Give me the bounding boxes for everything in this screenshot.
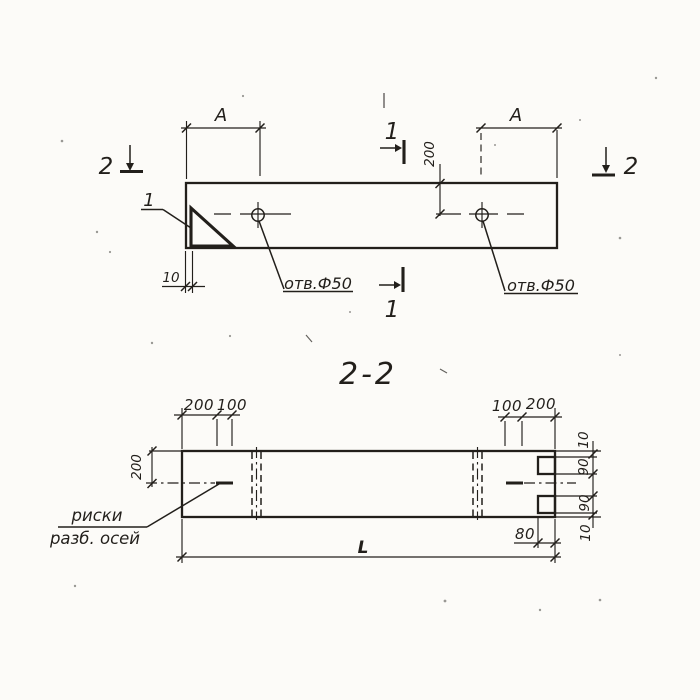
dim-top-left-200-label: 200 bbox=[184, 396, 214, 414]
dim-right-90-top-label: 90 bbox=[576, 458, 592, 475]
hole-hidden-right bbox=[473, 447, 482, 520]
section-title: 2-2 bbox=[339, 357, 397, 392]
scan-noise bbox=[61, 77, 658, 611]
dim-hole-offset: 200 bbox=[422, 141, 445, 218]
dim-a-left: A bbox=[181, 105, 266, 179]
section-mark-2-left-label: 2 bbox=[99, 154, 114, 180]
dim-length: L bbox=[176, 519, 561, 563]
dim-a-right: A bbox=[476, 105, 562, 178]
detail-callout: 1 bbox=[141, 190, 191, 228]
hole-note-right: отв.Ф50 bbox=[483, 221, 578, 295]
dim-hole-offset-label: 200 bbox=[422, 141, 438, 167]
dim-top-right-100-label: 100 bbox=[492, 397, 522, 415]
dim-half-height-label: 200 bbox=[129, 454, 145, 480]
section-mark-2-right-label: 2 bbox=[624, 154, 639, 180]
drawing-sheet: A A 200 10 1 bbox=[0, 0, 700, 700]
section-view: 2-2 200 bbox=[49, 357, 601, 563]
dim-half-height: 200 bbox=[129, 447, 181, 489]
hole-note-right-label: отв.Ф50 bbox=[507, 276, 575, 295]
dim-a-right-label: A bbox=[509, 105, 522, 126]
dim-right-10-top-label: 10 bbox=[576, 431, 592, 448]
technical-drawing: A A 200 10 1 bbox=[0, 0, 700, 700]
dim-chamfer: 10 bbox=[162, 251, 205, 293]
dim-top-right-200-label: 200 bbox=[526, 395, 556, 413]
axis-note-line2: разб. осей bbox=[49, 529, 140, 548]
dim-top-left-100-label: 100 bbox=[217, 396, 247, 414]
detail-callout-label: 1 bbox=[143, 190, 154, 211]
dim-chamfer-label: 10 bbox=[162, 270, 179, 286]
dims-top-right: 100 200 bbox=[492, 395, 562, 449]
section-mark-1-bottom-label: 1 bbox=[385, 297, 400, 323]
dims-top-left: 200 100 bbox=[174, 396, 247, 449]
dim-a-left-label: A bbox=[214, 105, 227, 126]
section-mark-1-top: 1 bbox=[380, 119, 404, 164]
dim-right-10-bottom-label: 10 bbox=[578, 524, 594, 541]
dim-notch-depth: 80 bbox=[514, 516, 561, 548]
beam-outline-section bbox=[182, 451, 555, 517]
hole-hidden-left bbox=[252, 447, 261, 520]
notch-top bbox=[538, 457, 555, 474]
section-mark-2-left: 2 bbox=[99, 145, 143, 180]
axis-note-line1: риски bbox=[71, 506, 123, 525]
hole-right-centerline bbox=[436, 202, 524, 228]
dim-right-90-bottom-label: 90 bbox=[577, 494, 593, 511]
section-mark-2-right: 2 bbox=[592, 147, 638, 180]
hole-note-left: отв.Ф50 bbox=[259, 221, 353, 293]
section-mark-1-bottom: 1 bbox=[379, 267, 403, 323]
plan-view: A A 200 10 1 bbox=[99, 105, 639, 323]
dims-right-side: 10 90 90 10 bbox=[556, 431, 601, 541]
dim-length-label: L bbox=[358, 538, 369, 558]
notch-bottom bbox=[538, 496, 555, 513]
dim-notch-depth-label: 80 bbox=[515, 525, 535, 543]
section-mark-1-top-label: 1 bbox=[385, 119, 400, 145]
hole-note-left-label: отв.Ф50 bbox=[284, 274, 352, 293]
beam-outline-plan bbox=[186, 183, 557, 248]
